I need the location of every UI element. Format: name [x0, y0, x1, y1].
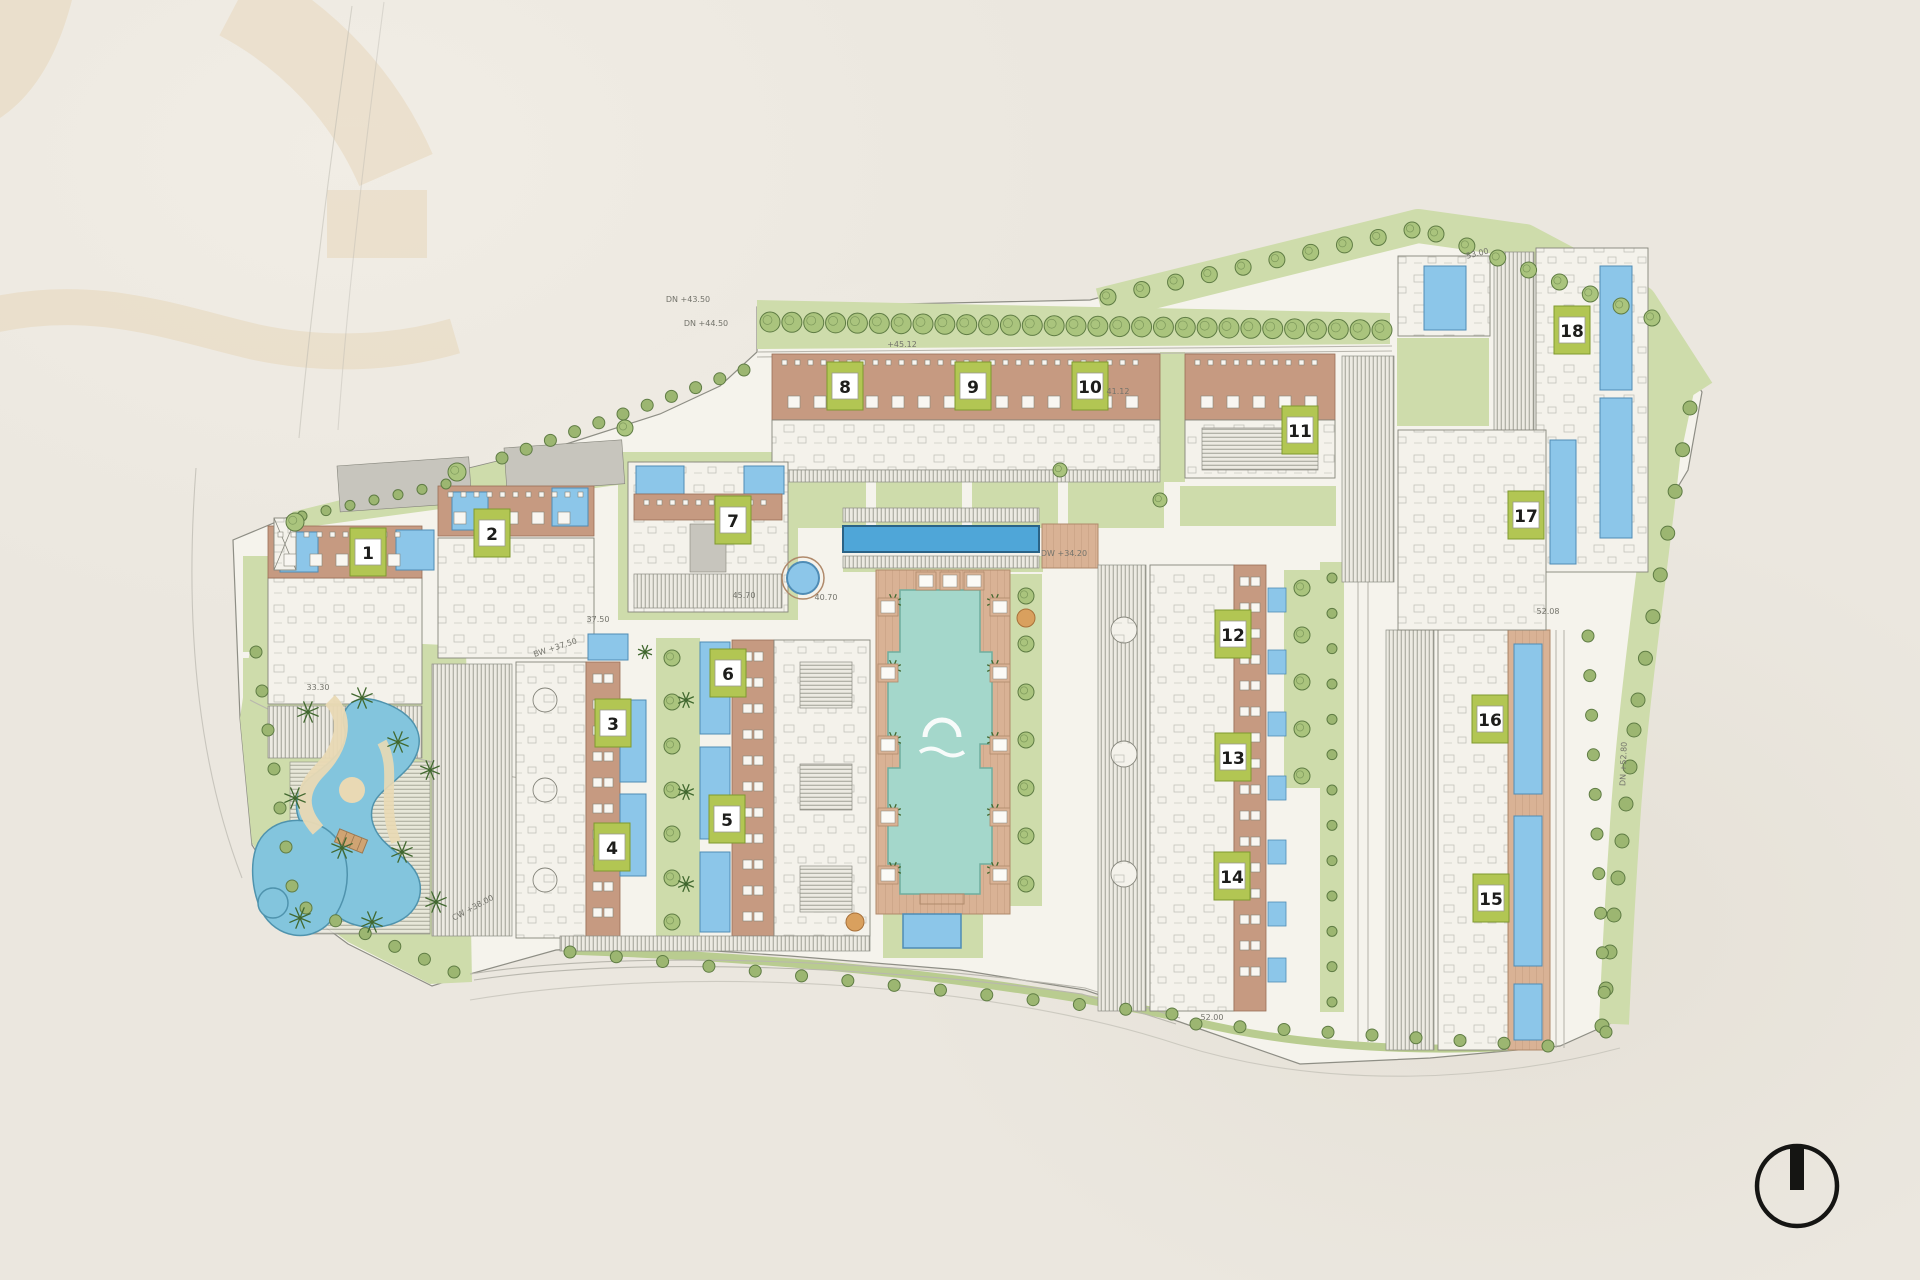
svg-text:9: 9: [967, 378, 979, 398]
bush-icon: [1454, 1035, 1466, 1047]
svg-text:1: 1: [362, 544, 374, 564]
cabana-icon: [878, 664, 898, 682]
bush-icon: [1166, 1008, 1178, 1020]
bush-icon: [842, 975, 854, 987]
tree-icon: [1044, 316, 1064, 336]
tree-icon: [1110, 317, 1130, 337]
bush-icon: [1322, 1026, 1334, 1038]
level-annotation: DN +52.80: [1618, 742, 1629, 787]
bush-icon: [250, 646, 262, 658]
building-7-block: [628, 462, 788, 612]
svg-text:6: 6: [722, 665, 734, 685]
cabana-icon: [878, 866, 898, 884]
tree-icon: [957, 315, 977, 335]
building-label-2: 2: [474, 509, 510, 557]
svg-text:15: 15: [1479, 890, 1503, 910]
tree-icon: [1235, 259, 1251, 275]
svg-text:11: 11: [1288, 422, 1312, 442]
plunge-pool: [1268, 958, 1286, 982]
bush-icon: [1327, 820, 1337, 830]
bush-icon: [418, 953, 430, 965]
svg-text:4: 4: [606, 839, 618, 859]
bush-icon: [610, 951, 622, 963]
central-courtyard: [876, 570, 1010, 948]
bush-icon: [496, 452, 508, 464]
tree-icon: [869, 313, 889, 333]
plunge-pool: [1268, 776, 1286, 800]
tree-icon: [1201, 267, 1217, 283]
bush-icon: [1327, 962, 1337, 972]
tree-icon: [1053, 463, 1067, 477]
courtyard-pool: [888, 590, 992, 894]
tree-icon: [979, 315, 999, 335]
bush-icon: [749, 965, 761, 977]
tree-icon: [804, 313, 824, 333]
bush-icon: [1234, 1021, 1246, 1033]
parking-strip-east: [1342, 356, 1394, 582]
building-label-11: 11: [1282, 406, 1318, 454]
bush-icon: [1327, 785, 1337, 795]
building-label-3: 3: [595, 699, 631, 747]
bush-icon: [1600, 1026, 1612, 1038]
tree-icon: [826, 313, 846, 333]
plunge-pool: [1268, 840, 1286, 864]
bush-icon: [1611, 871, 1625, 885]
building-label-18: 18: [1554, 306, 1590, 354]
bush-icon: [1498, 1037, 1510, 1049]
watermark-arc-left: [0, 0, 72, 118]
tree-icon: [1018, 828, 1034, 844]
tree-icon: [617, 420, 633, 436]
tree-icon: [664, 914, 680, 930]
bush-icon: [1631, 693, 1645, 707]
bush-icon: [714, 373, 726, 385]
bush-icon: [369, 495, 379, 505]
bush-icon: [274, 802, 286, 814]
bush-icon: [690, 382, 702, 394]
building-label-15: 15: [1473, 874, 1509, 922]
bush-icon: [1027, 994, 1039, 1006]
bush-icon: [738, 364, 750, 376]
tree-icon: [1613, 298, 1629, 314]
cabana-icon: [990, 598, 1010, 616]
tree-icon: [1066, 316, 1086, 336]
tree-icon: [1018, 876, 1034, 892]
building-label-1: 1: [350, 528, 386, 576]
svg-text:16: 16: [1478, 711, 1502, 731]
building-label-10: 10: [1072, 362, 1108, 410]
tree-icon: [1132, 317, 1152, 337]
tree-icon: [1490, 250, 1506, 266]
bush-icon: [1582, 630, 1594, 642]
tree-icon: [1294, 768, 1310, 784]
bush-icon: [1410, 1032, 1422, 1044]
bush-icon: [1607, 908, 1621, 922]
svg-text:2: 2: [486, 525, 498, 545]
bush-icon: [417, 484, 427, 494]
tree-icon: [1294, 580, 1310, 596]
building-label-12: 12: [1215, 610, 1251, 658]
bush-icon: [1327, 644, 1337, 654]
bush-icon: [1587, 749, 1599, 761]
tree-icon: [782, 312, 802, 332]
svg-text:7: 7: [727, 512, 739, 532]
plunge-pool: [1268, 902, 1286, 926]
bush-icon: [441, 479, 451, 489]
tree-icon: [1168, 274, 1184, 290]
bush-icon: [544, 434, 556, 446]
level-annotation: 52.00: [1201, 1013, 1224, 1022]
parking-strip-west: [432, 664, 512, 936]
bush-icon: [1584, 670, 1596, 682]
tree-icon: [1018, 732, 1034, 748]
svg-text:5: 5: [721, 811, 733, 831]
bush-icon: [1615, 834, 1629, 848]
bush-icon: [1327, 714, 1337, 724]
bush-icon: [1278, 1024, 1290, 1036]
tree-icon: [1404, 222, 1420, 238]
tree-icon: [1269, 252, 1285, 268]
plunge-pool: [1268, 588, 1286, 612]
cabana-icon: [964, 572, 984, 590]
bush-icon: [1646, 610, 1660, 624]
bush-icon: [934, 984, 946, 996]
building-label-9: 9: [955, 362, 991, 410]
svg-text:8: 8: [839, 378, 851, 398]
building-label-16: 16: [1472, 695, 1508, 743]
building-label-8: 8: [827, 362, 863, 410]
tree-icon: [1153, 493, 1167, 507]
bush-icon: [617, 408, 629, 420]
tree-icon: [664, 826, 680, 842]
tree-icon: [1219, 318, 1239, 338]
bush-icon: [520, 443, 532, 455]
tree-icon: [1350, 320, 1370, 340]
bush-icon: [1619, 797, 1633, 811]
level-annotation: 37.50: [587, 615, 610, 624]
cabana-icon: [990, 866, 1010, 884]
tree-icon: [1100, 289, 1116, 305]
bush-icon: [330, 915, 342, 927]
tree-icon: [847, 313, 867, 333]
building-label-13: 13: [1215, 733, 1251, 781]
bush-icon: [1327, 679, 1337, 689]
bush-icon: [641, 399, 653, 411]
tree-icon: [664, 782, 680, 798]
bush-icon: [268, 763, 280, 775]
tree-icon: [1134, 282, 1150, 298]
cabana-icon: [916, 572, 936, 590]
bush-icon: [1327, 926, 1337, 936]
level-annotation: 52.08: [1537, 607, 1560, 616]
bush-icon: [1586, 709, 1598, 721]
level-annotation: 33.30: [307, 683, 330, 692]
tree-icon: [1022, 315, 1042, 335]
plunge-pool: [1268, 650, 1286, 674]
tree-icon: [1644, 310, 1660, 326]
tree-icon: [1018, 588, 1034, 604]
svg-text:14: 14: [1220, 868, 1244, 888]
tree-icon: [1263, 319, 1283, 339]
tree-icon: [1088, 316, 1108, 336]
svg-text:13: 13: [1221, 749, 1245, 769]
brand-watermark-arch-icon: [0, 0, 455, 351]
tree-icon: [1551, 274, 1567, 290]
building-label-7: 7: [715, 496, 751, 544]
bush-icon: [1676, 443, 1690, 457]
tree-icon: [891, 314, 911, 334]
tree-icon: [760, 312, 780, 332]
bush-icon: [448, 966, 460, 978]
tree-icon: [1153, 317, 1173, 337]
building-label-14: 14: [1214, 852, 1250, 900]
tree-icon: [1582, 286, 1598, 302]
plunge-pool: [1268, 712, 1286, 736]
level-annotation: 45.70: [733, 591, 756, 600]
tree-icon: [1241, 318, 1261, 338]
bush-icon: [796, 970, 808, 982]
tree-icon: [1303, 244, 1319, 260]
tree-icon: [1328, 319, 1348, 339]
tree-icon: [1018, 780, 1034, 796]
tree-icon: [1306, 319, 1326, 339]
bush-icon: [1638, 651, 1652, 665]
tree-icon: [1294, 721, 1310, 737]
tree-icon: [1428, 226, 1444, 242]
bush-icon: [1591, 828, 1603, 840]
tree-icon: [286, 513, 304, 531]
bush-icon: [280, 841, 292, 853]
bush-icon: [1120, 1003, 1132, 1015]
bush-icon: [1073, 998, 1085, 1010]
bush-icon: [321, 506, 331, 516]
bush-icon: [1327, 891, 1337, 901]
bush-icon: [981, 989, 993, 1001]
watermark-block: [327, 190, 427, 258]
bush-icon: [1327, 997, 1337, 1007]
kids-pool: [903, 914, 961, 948]
bush-icon: [262, 724, 274, 736]
north-compass-icon: [1757, 1146, 1837, 1226]
cabana-icon: [990, 736, 1010, 754]
bush-icon: [564, 946, 576, 958]
tree-icon: [1175, 317, 1195, 337]
bush-icon: [286, 880, 298, 892]
bush-icon: [1366, 1029, 1378, 1041]
bush-icon: [1595, 907, 1607, 919]
watermark-arc-right: [238, 0, 396, 170]
bush-icon: [1327, 573, 1337, 583]
bush-icon: [1668, 484, 1682, 498]
bush-icon: [1598, 986, 1610, 998]
cabana-icon: [990, 808, 1010, 826]
bush-icon: [1653, 568, 1667, 582]
tree-icon: [1197, 318, 1217, 338]
bush-icon: [256, 685, 268, 697]
bush-icon: [393, 490, 403, 500]
bush-icon: [1627, 723, 1641, 737]
tree-icon: [1521, 262, 1537, 278]
bush-icon: [1589, 788, 1601, 800]
level-annotation: DN +43.50: [666, 295, 710, 304]
site-plan-canvas: 123456789101112131415161718 DN +43.50DN …: [0, 0, 1920, 1280]
cabana-icon: [990, 664, 1010, 682]
svg-text:10: 10: [1078, 378, 1102, 398]
tree-icon: [1336, 237, 1352, 253]
cabana-icon: [940, 572, 960, 590]
level-annotation: 40.70: [815, 593, 838, 602]
bush-icon: [1661, 526, 1675, 540]
tree-icon: [935, 314, 955, 334]
tree-icon: [913, 314, 933, 334]
bush-icon: [1327, 608, 1337, 618]
tree-icon: [1000, 315, 1020, 335]
level-annotation: DW +34.20: [1041, 549, 1087, 558]
tree-icon: [1018, 684, 1034, 700]
building-label-6: 6: [710, 649, 746, 697]
tree-icon: [1370, 229, 1386, 245]
tree-icon: [664, 738, 680, 754]
level-annotation: 41.12: [1107, 387, 1130, 396]
tree-icon: [1018, 636, 1034, 652]
lap-pool: [843, 526, 1039, 552]
level-annotation: +45.12: [887, 340, 917, 349]
bush-icon: [1327, 750, 1337, 760]
bush-icon: [1327, 856, 1337, 866]
building-label-17: 17: [1508, 491, 1544, 539]
building-label-5: 5: [709, 795, 745, 843]
building-label-4: 4: [594, 823, 630, 871]
tree-icon: [1285, 319, 1305, 339]
bush-icon: [703, 960, 715, 972]
bush-icon: [569, 426, 581, 438]
tree-icon: [1372, 320, 1392, 340]
bush-icon: [665, 390, 677, 402]
tree-icon: [664, 870, 680, 886]
bush-icon: [1596, 947, 1608, 959]
bush-icon: [389, 940, 401, 952]
bush-icon: [1683, 401, 1697, 415]
svg-text:12: 12: [1221, 626, 1245, 646]
building-strip-3-4: [432, 634, 646, 938]
tree-icon: [664, 650, 680, 666]
tree-icon: [448, 463, 466, 481]
bush-icon: [345, 500, 355, 510]
round-pond: [258, 888, 288, 918]
cabana-icon: [878, 598, 898, 616]
svg-text:18: 18: [1560, 322, 1584, 342]
watermark-wave: [0, 307, 455, 351]
bush-icon: [593, 417, 605, 429]
level-annotation: DN +44.50: [684, 319, 728, 328]
tree-icon: [1294, 627, 1310, 643]
svg-text:17: 17: [1514, 507, 1538, 527]
bush-icon: [657, 956, 669, 968]
cabana-icon: [878, 808, 898, 826]
building-column-15-16: [1386, 630, 1550, 1050]
svg-text:3: 3: [607, 715, 619, 735]
bush-icon: [1593, 868, 1605, 880]
bush-icon: [888, 979, 900, 991]
bush-icon: [1542, 1040, 1554, 1052]
tree-icon: [664, 694, 680, 710]
cabana-icon: [878, 736, 898, 754]
tree-icon: [1294, 674, 1310, 690]
